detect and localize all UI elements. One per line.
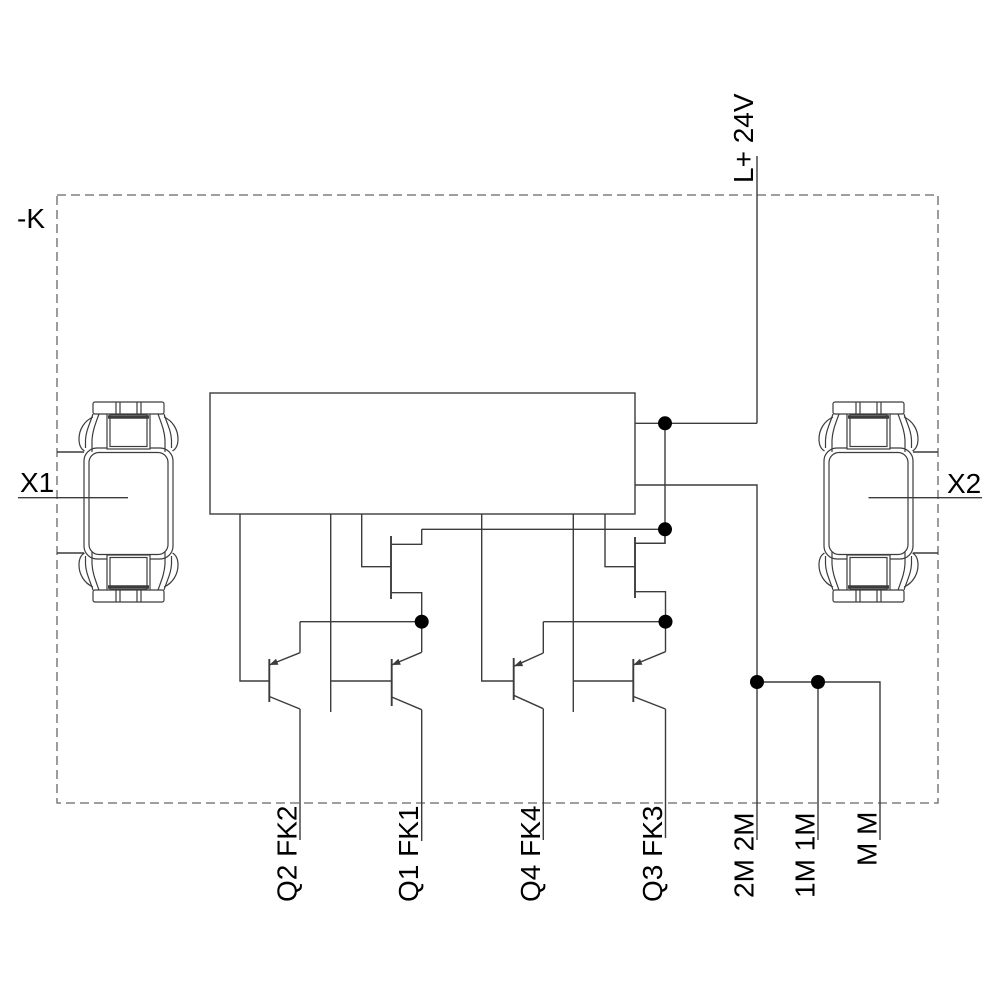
ground-label-1m: 1M 1M (790, 812, 821, 898)
output-label-q2fk2: Q2 FK2 (272, 806, 303, 902)
ground-label-2m: 2M 2M (729, 812, 760, 898)
output-label-q1fk1: Q1 FK1 (393, 806, 424, 902)
output-label-q3fk3: Q3 FK3 (637, 806, 668, 902)
supply-wire (635, 156, 757, 423)
x2-border-stub (913, 452, 938, 553)
output-transistor-fk1 (331, 514, 422, 841)
x1-border-stub (57, 452, 84, 553)
connector-x2-label: X2 (947, 468, 981, 499)
junction-dot (811, 675, 825, 689)
controller-block (210, 393, 635, 514)
supply-line-group: L+ 24V (635, 93, 759, 423)
driver-transistor-right (605, 514, 666, 622)
connector-x2: X2 (819, 402, 982, 602)
output-transistor-fk3 (573, 514, 665, 838)
supply-label: L+ 24V (728, 93, 759, 183)
block-to-ground-wire (635, 485, 757, 840)
device-label: -K (17, 203, 45, 234)
driver-transistor-left (362, 514, 422, 622)
schematic-page: -K L+ 24V (0, 0, 1000, 1000)
junction-dot (658, 416, 672, 430)
ground-label-m: M M (852, 812, 883, 866)
junction-dot (750, 675, 764, 689)
junction-dot (415, 615, 429, 629)
wiring-diagram: -K L+ 24V (0, 0, 1000, 1000)
connector-x1-label: X1 (20, 467, 54, 498)
terminal-labels: Q2 FK2 Q1 FK1 Q4 FK4 Q3 FK3 2M 2M 1M 1M … (272, 806, 883, 902)
junction-dot (658, 522, 672, 536)
connector-x1-symbol (79, 402, 178, 602)
connector-x1: X1 (18, 402, 178, 602)
output-label-q4fk4: Q4 FK4 (515, 806, 546, 902)
connector-x2-symbol (819, 402, 918, 602)
junction-dot (659, 615, 673, 629)
